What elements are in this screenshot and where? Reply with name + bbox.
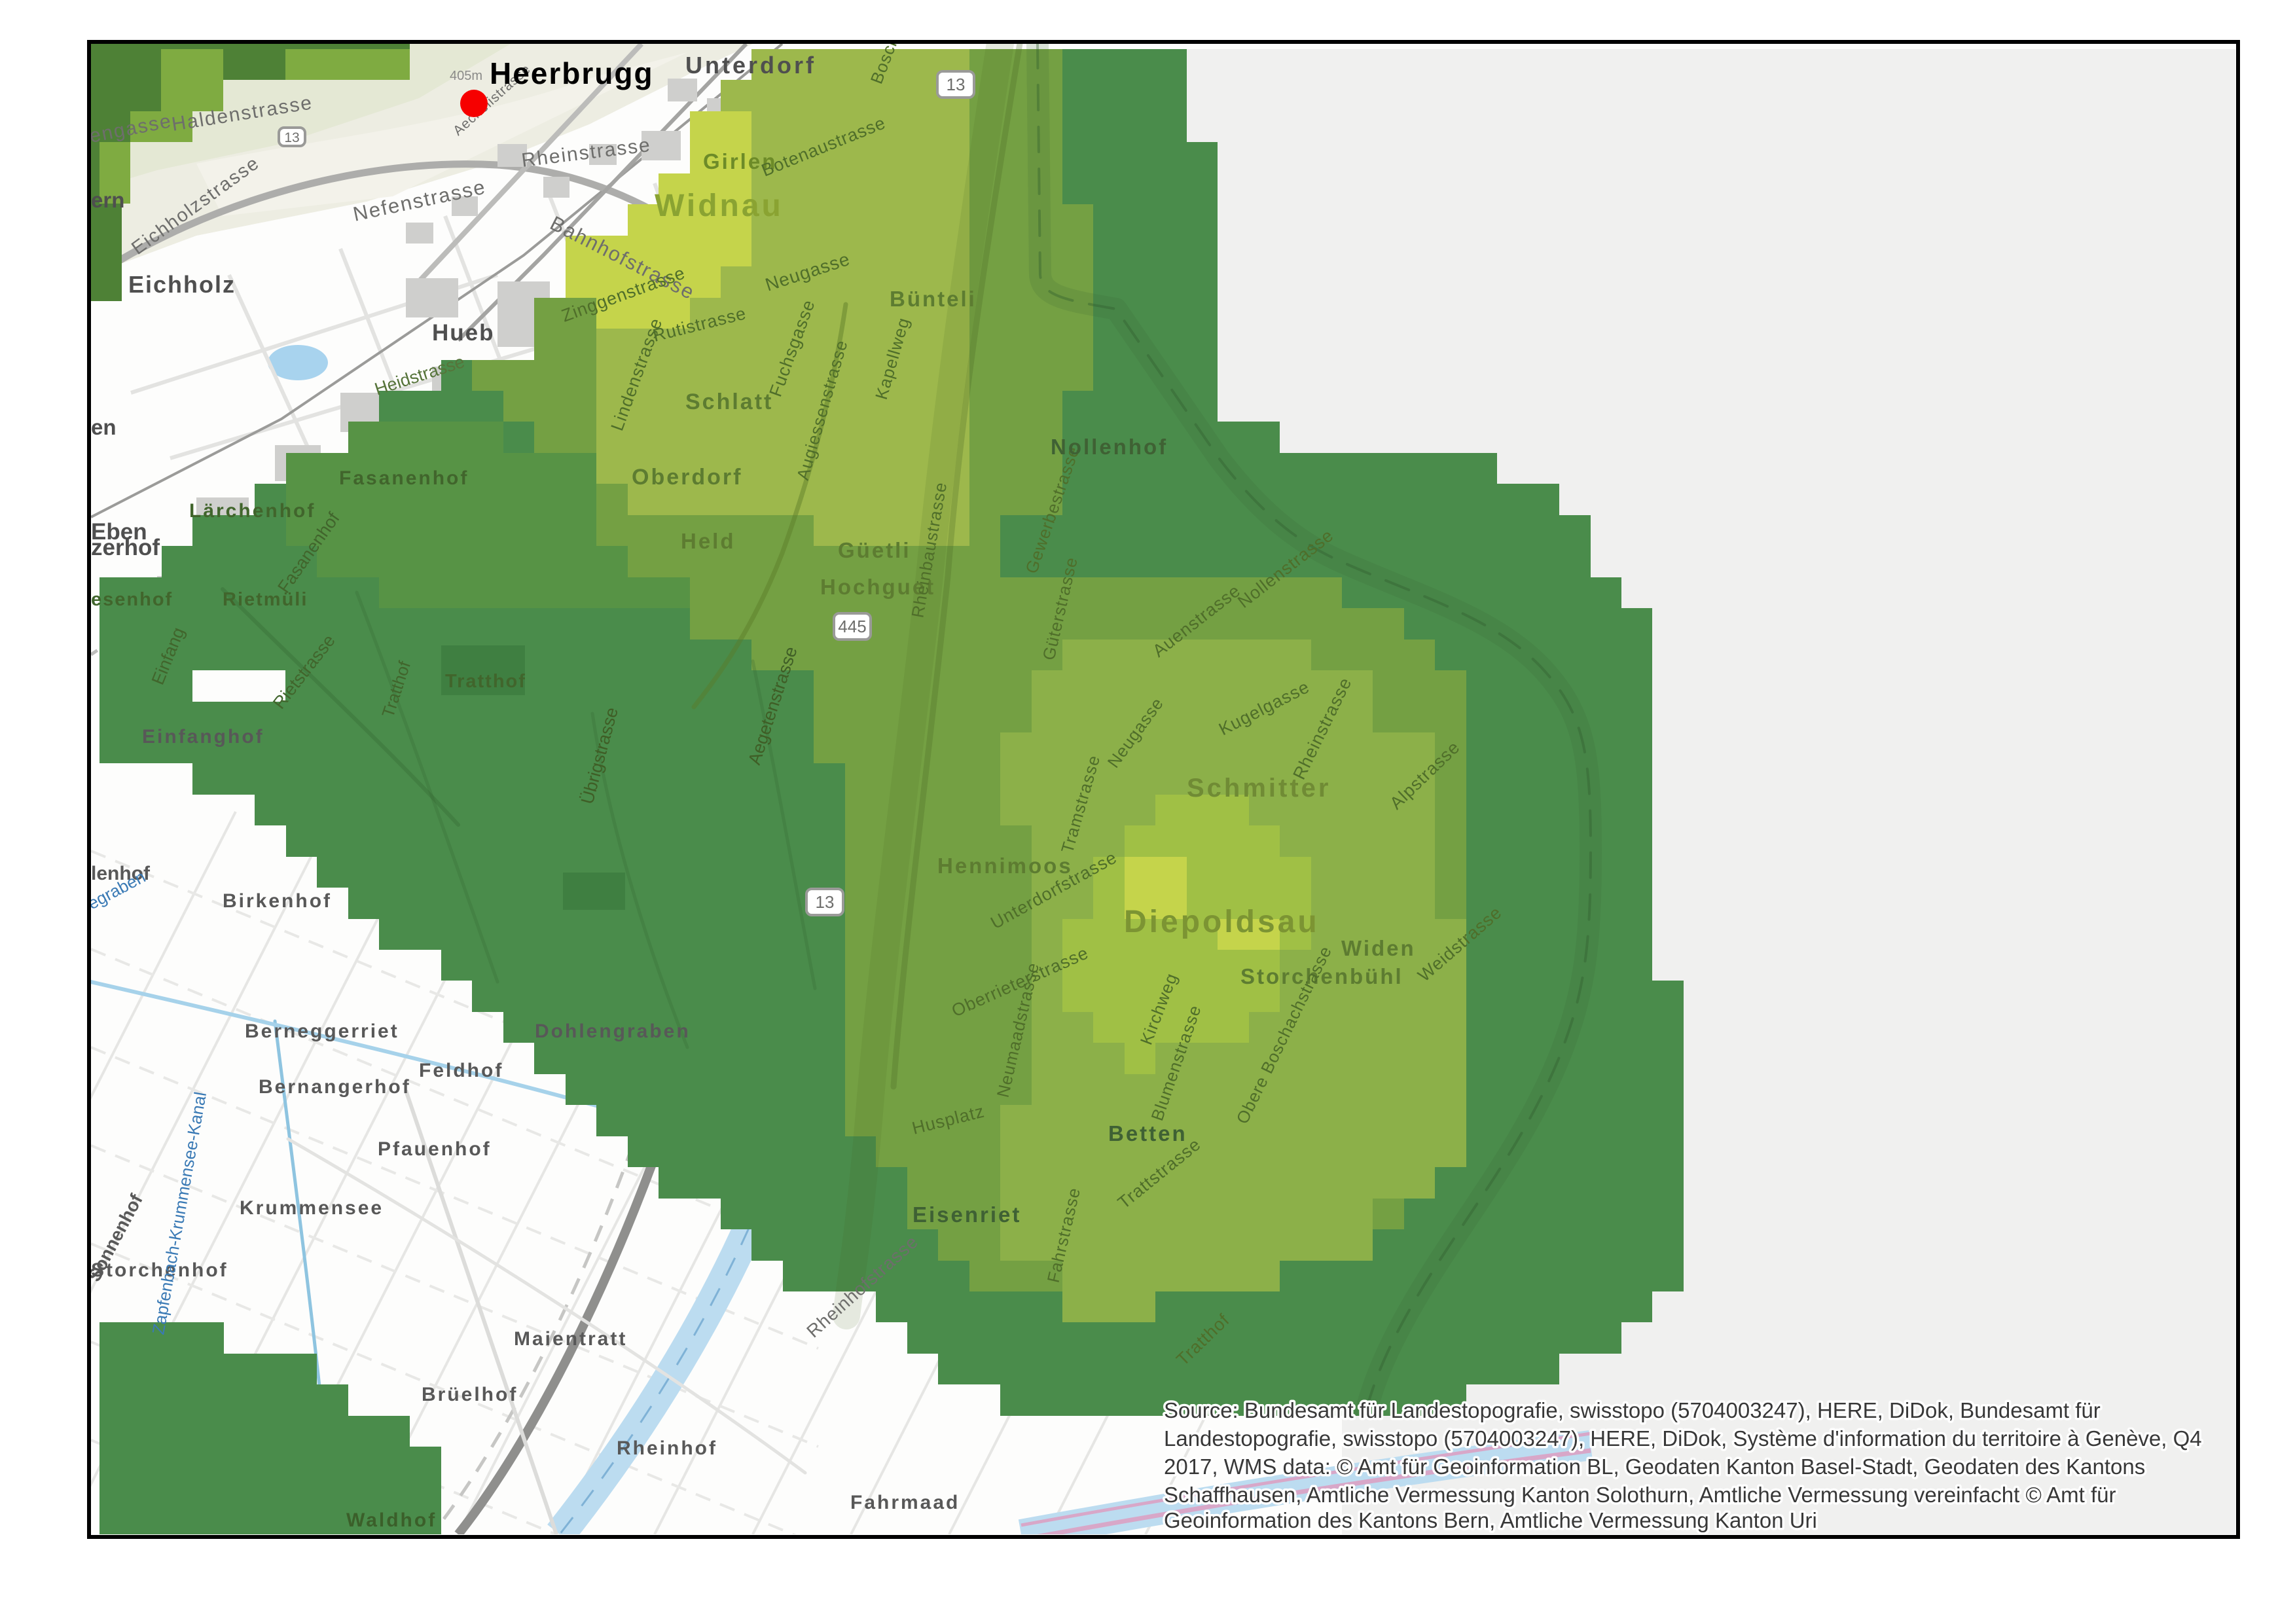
svg-text:en: en	[91, 415, 117, 439]
svg-text:Oberdorf: Oberdorf	[632, 465, 742, 490]
svg-text:Brüelhof: Brüelhof	[422, 1384, 518, 1405]
svg-text:Berneggerriet: Berneggerriet	[245, 1020, 399, 1042]
svg-text:Schaffhausen, Amtliche Vermess: Schaffhausen, Amtliche Vermessung Kanton…	[1164, 1483, 2116, 1507]
svg-text:Rheinhof: Rheinhof	[617, 1437, 717, 1459]
svg-text:Rietmüli: Rietmüli	[223, 589, 308, 610]
svg-text:esenhof: esenhof	[91, 589, 173, 610]
svg-text:Lärchenhof: Lärchenhof	[189, 500, 316, 522]
svg-text:Hennimoos: Hennimoos	[937, 854, 1073, 878]
svg-text:13: 13	[284, 130, 299, 145]
svg-text:Widnau: Widnau	[655, 189, 784, 223]
svg-text:Birkenhof: Birkenhof	[223, 890, 332, 912]
svg-text:Fasanenhof: Fasanenhof	[339, 467, 469, 489]
svg-text:2017, WMS data: © Amt für Geoi: 2017, WMS data: © Amt für Geoinformation…	[1164, 1454, 2145, 1479]
svg-text:Eichholz: Eichholz	[128, 271, 236, 298]
svg-text:445: 445	[838, 617, 866, 636]
svg-text:Schlatt: Schlatt	[685, 389, 773, 414]
svg-text:Krummensee: Krummensee	[240, 1197, 384, 1219]
svg-text:Bernangerhof: Bernangerhof	[259, 1076, 411, 1098]
svg-text:Waldhof: Waldhof	[346, 1509, 437, 1531]
svg-text:Fahrmaad: Fahrmaad	[850, 1492, 960, 1513]
svg-text:Nollenhof: Nollenhof	[1051, 435, 1168, 459]
svg-text:Geoinformation des Kantons Ber: Geoinformation des Kantons Bern, Amtlich…	[1164, 1508, 1817, 1532]
svg-text:Einfanghof: Einfanghof	[142, 726, 264, 748]
svg-text:Dohlengraben: Dohlengraben	[535, 1020, 691, 1042]
svg-text:Unterdorf: Unterdorf	[685, 52, 816, 79]
svg-text:Betten: Betten	[1108, 1121, 1187, 1146]
svg-text:13: 13	[947, 75, 966, 94]
svg-text:Heerbrugg: Heerbrugg	[490, 56, 654, 90]
svg-text:ern: ern	[91, 188, 124, 212]
svg-text:Güetli: Güetli	[838, 538, 911, 562]
svg-text:Tratthof: Tratthof	[445, 671, 526, 692]
svg-text:405m: 405m	[450, 69, 482, 83]
svg-text:Diepoldsau: Diepoldsau	[1124, 905, 1320, 939]
svg-text:Landestopografie, swisstopo (5: Landestopografie, swisstopo (5704003247)…	[1164, 1426, 2202, 1451]
svg-text:Schmitter: Schmitter	[1187, 774, 1331, 803]
svg-text:13: 13	[816, 892, 835, 912]
svg-text:Source: Bundesamt für Landesto: Source: Bundesamt für Landestopografie, …	[1164, 1398, 2101, 1422]
svg-text:Pfauenhof: Pfauenhof	[378, 1138, 492, 1160]
svg-text:Held: Held	[681, 529, 736, 553]
svg-text:Bünteli: Bünteli	[890, 287, 977, 311]
svg-text:Feldhof: Feldhof	[419, 1060, 503, 1081]
svg-text:Maientratt: Maientratt	[514, 1328, 627, 1350]
svg-text:Widen: Widen	[1341, 936, 1416, 960]
svg-text:zerhof: zerhof	[91, 535, 160, 560]
svg-text:Hueb: Hueb	[432, 320, 495, 346]
svg-text:Eisenriet: Eisenriet	[913, 1202, 1021, 1227]
